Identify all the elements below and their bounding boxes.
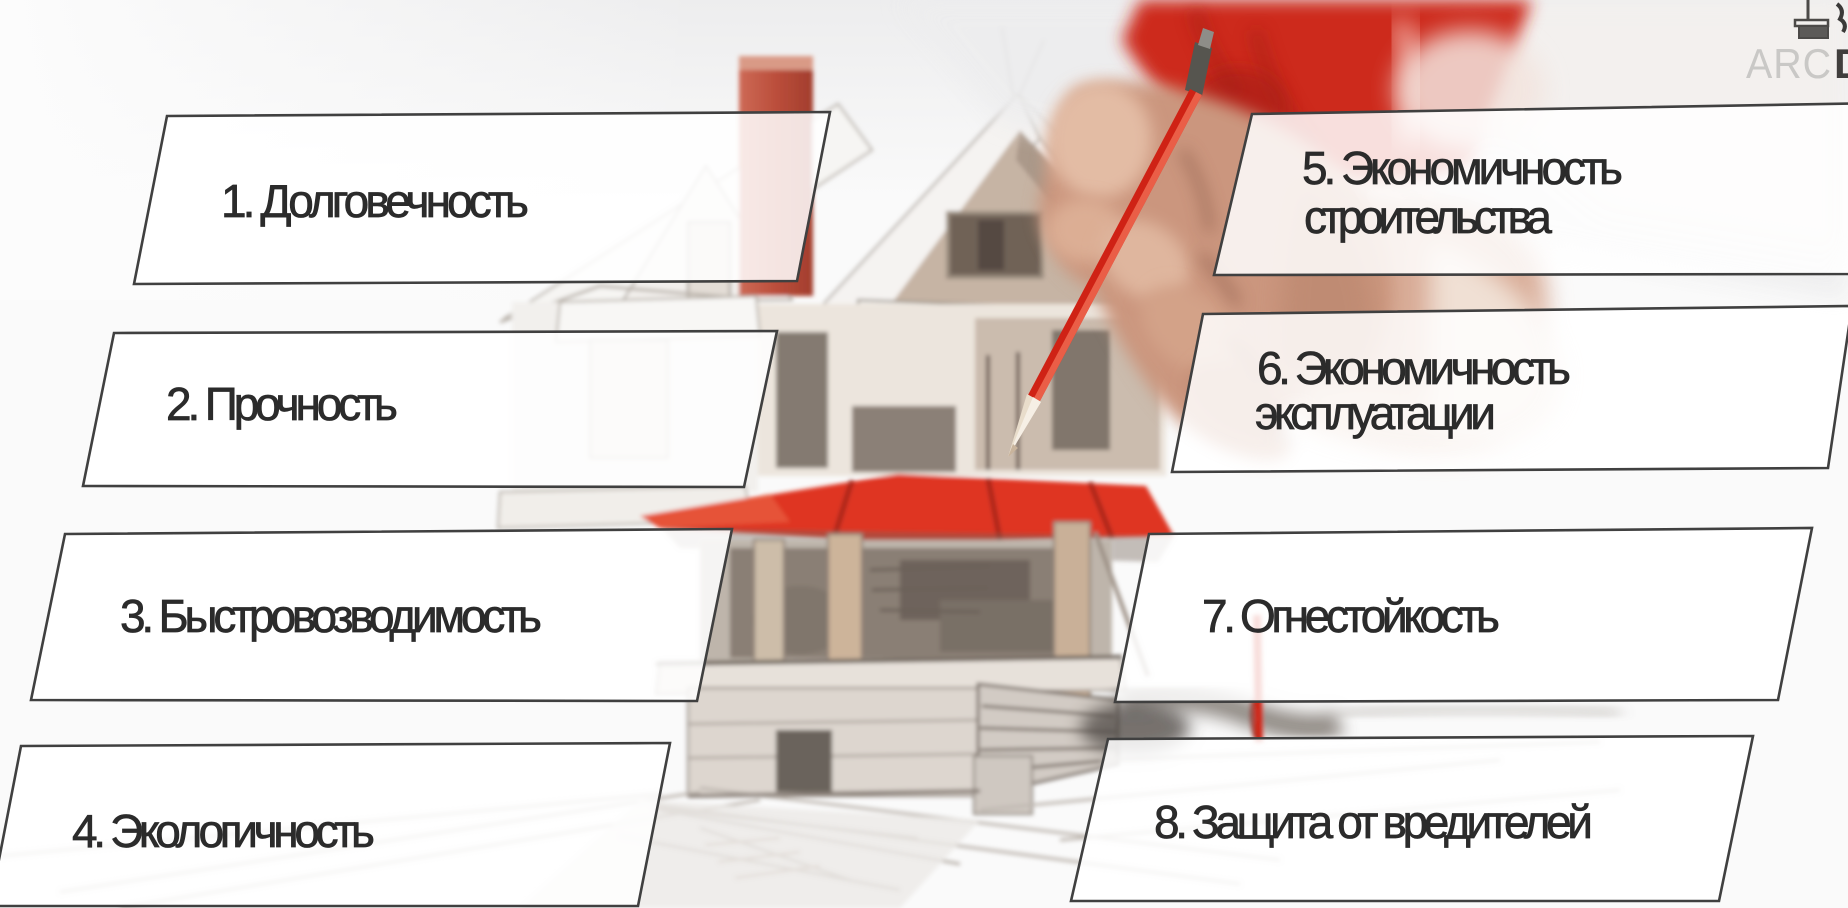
svg-text:строительства: строительства [1304, 191, 1552, 243]
svg-text:D: D [1834, 40, 1848, 87]
svg-text:5. Экономичность: 5. Экономичность [1302, 142, 1623, 194]
svg-text:4. Экологичность: 4. Экологичность [72, 805, 375, 857]
svg-text:ARC: ARC [1746, 40, 1832, 87]
svg-text:эксплуатации: эксплуатации [1255, 387, 1496, 439]
svg-text:1. Долговечность: 1. Долговечность [221, 175, 529, 227]
svg-text:7. Огнестойкость: 7. Огнестойкость [1202, 590, 1500, 642]
svg-text:3. Быстровозводимость: 3. Быстровозводимость [120, 590, 542, 642]
svg-text:2. Прочность: 2. Прочность [166, 378, 398, 430]
svg-text:8. Защита от вредителей: 8. Защита от вредителей [1154, 796, 1593, 848]
